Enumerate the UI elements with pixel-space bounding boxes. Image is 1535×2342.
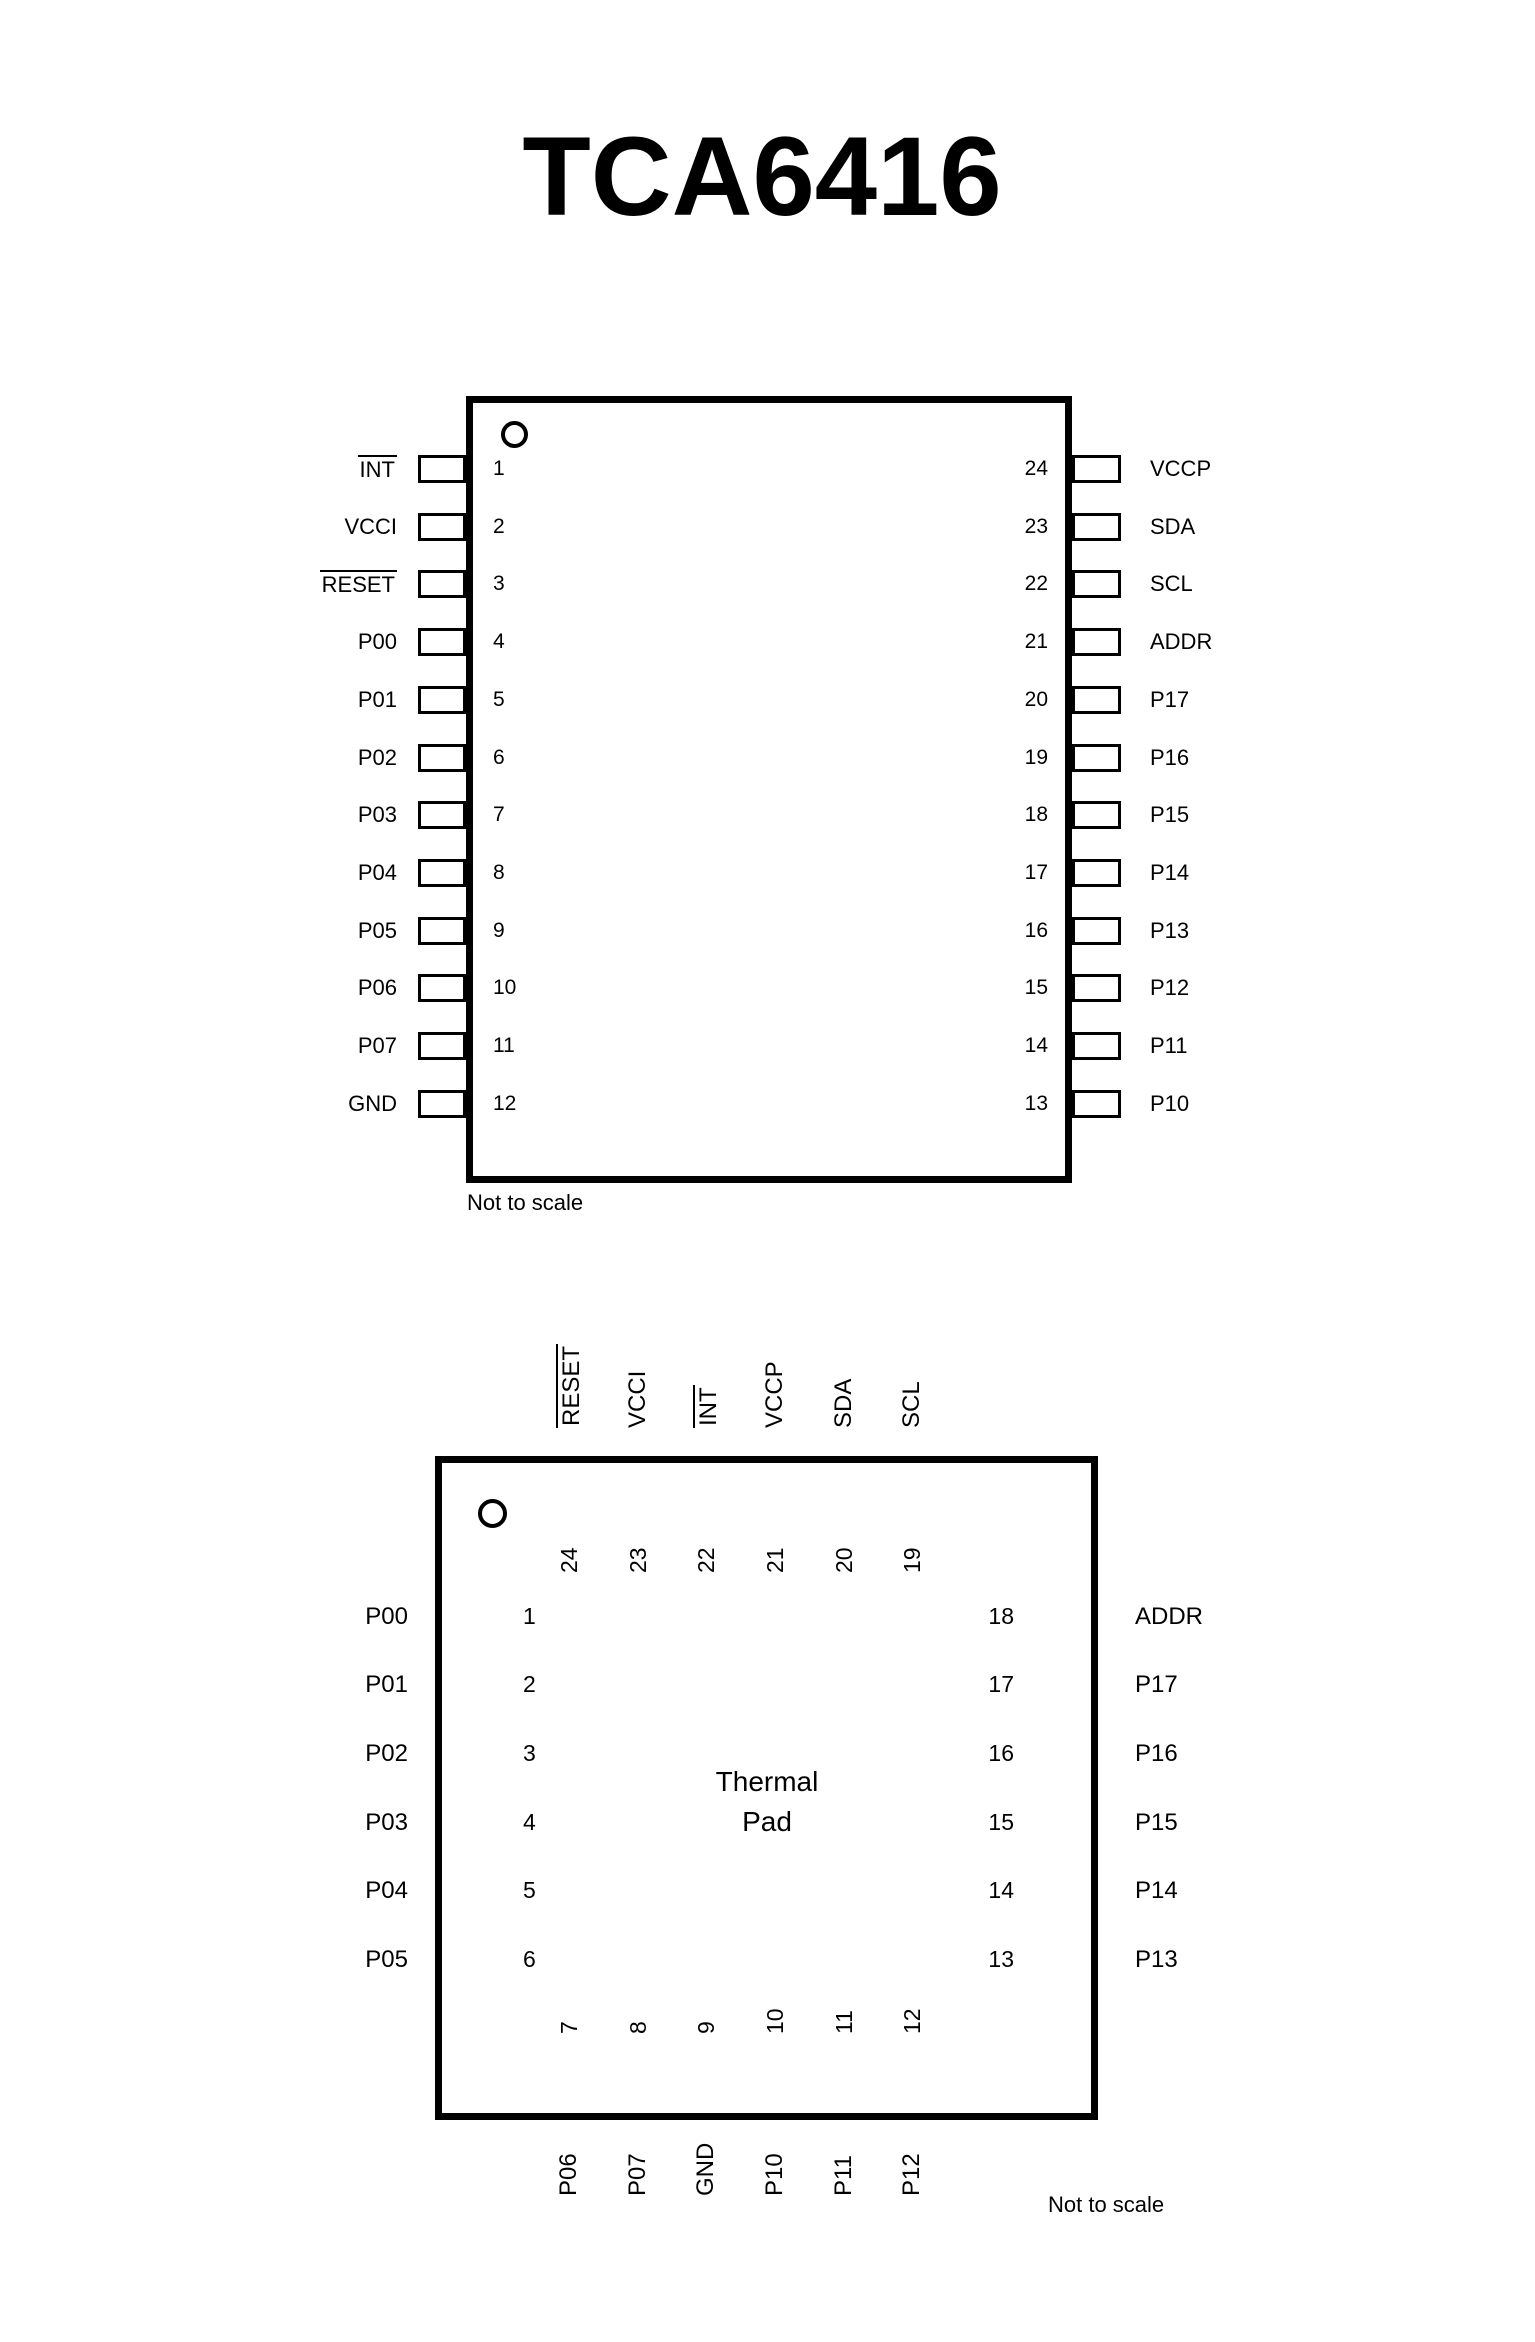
pin-label-text: VCCI (624, 1371, 651, 1428)
pin-label: P03 (200, 801, 397, 829)
pin-number: 22 (693, 1547, 719, 1573)
pin-number: 13 (998, 1090, 1048, 1118)
pin-number: 21 (998, 628, 1048, 656)
pin-number: 20 (998, 686, 1048, 714)
pin-number: 22 (998, 570, 1048, 598)
pin-label: SCL (1150, 570, 1310, 598)
pin-label: P15 (1135, 1805, 1295, 1840)
pin-box (1072, 686, 1121, 714)
pin-number: 16 (998, 917, 1048, 945)
pin-number: 15 (964, 1805, 1014, 1840)
pin-label-text: P00 (365, 1603, 408, 1630)
pin-label-text: VCCP (1150, 456, 1211, 481)
pin-box (418, 686, 466, 714)
pin-box (1072, 513, 1121, 541)
pin-label: RESET (200, 570, 397, 598)
page-title: TCA6416 (0, 112, 1524, 241)
pin-label-text: P12 (898, 2153, 925, 2196)
pin-label-text: P17 (1150, 687, 1189, 712)
pin-number: 17 (998, 859, 1048, 887)
pin-label: SCL (899, 1381, 925, 1428)
pin-label-text: P10 (761, 2153, 788, 2196)
pin-label: P01 (250, 1667, 408, 1702)
pin-box (1072, 744, 1121, 772)
pin-box (1072, 1090, 1121, 1118)
pin-box (418, 1090, 466, 1118)
pin-label: VCCP (762, 1361, 788, 1428)
pin-label-text: SDA (830, 1379, 857, 1428)
pin-number: 23 (998, 513, 1048, 541)
pin-label: P07 (200, 1032, 397, 1060)
pin-box (1072, 570, 1121, 598)
pin-label: P04 (200, 859, 397, 887)
pin-label-text: RESET (320, 570, 397, 596)
pin-label: P02 (200, 744, 397, 772)
pin-label: P05 (250, 1942, 408, 1977)
pin-number: 2 (523, 1667, 567, 1702)
pin-label-text: P04 (365, 1877, 408, 1904)
pin-box (418, 917, 466, 945)
pin-number: 15 (998, 974, 1048, 1002)
pin-number: 19 (998, 744, 1048, 772)
pin-label-text: SCL (1150, 571, 1193, 596)
pin-number: 4 (493, 628, 539, 656)
pin-label-text: P16 (1150, 745, 1189, 770)
pin-label-text: VCCP (761, 1361, 788, 1428)
pin-number: 21 (762, 1547, 788, 1573)
pin-label: P00 (200, 628, 397, 656)
pin-label-text: P12 (1150, 975, 1189, 1000)
pin-label: VCCI (625, 1371, 651, 1428)
pin-number: 23 (625, 1547, 651, 1573)
pin-label: P17 (1150, 686, 1310, 714)
pin-number: 13 (964, 1942, 1014, 1977)
pin-label-text: P10 (1150, 1091, 1189, 1116)
pin-label: P17 (1135, 1667, 1295, 1702)
pin-label-text: ADDR (1150, 629, 1212, 654)
pin-number: 18 (998, 801, 1048, 829)
pin-label-text: P03 (358, 802, 397, 827)
pin-label: P16 (1150, 744, 1310, 772)
pin-label-text: P11 (1150, 1033, 1188, 1058)
pin-box (1072, 974, 1121, 1002)
tssop-pin1-indicator-circle (501, 421, 528, 448)
pin-label: P10 (1150, 1090, 1310, 1118)
pin-box (418, 1032, 466, 1060)
pin-box (418, 859, 466, 887)
pin-label-text: P04 (358, 860, 397, 885)
pin-number: 8 (493, 859, 539, 887)
pin-label-text: P02 (358, 745, 397, 770)
pin-label-text: P03 (365, 1809, 408, 1836)
qfn-pin1-indicator-circle (478, 1499, 507, 1528)
datasheet-page: TCA6416 1INT2VCCI3RESET4P005P016P027P038… (0, 0, 1535, 2342)
pin-label-text: ADDR (1135, 1603, 1203, 1630)
pin-label-text: GND (692, 2143, 719, 2196)
pin-label-text: P06 (555, 2153, 582, 2196)
pin-label: P12 (1150, 974, 1310, 1002)
pin-number: 18 (964, 1599, 1014, 1634)
pin-box (1072, 455, 1121, 483)
pin-label-text: P14 (1150, 860, 1189, 885)
pin-number: 6 (493, 744, 539, 772)
pin-label: P11 (831, 2155, 857, 2196)
pin-number: 14 (964, 1873, 1014, 1908)
thermal-pad-label-line2: Pad (592, 1802, 942, 1842)
pin-box (1072, 859, 1121, 887)
pin-label-text: P15 (1150, 802, 1189, 827)
pin-number: 11 (831, 2010, 857, 2034)
pin-label-text: P11 (830, 2155, 857, 2196)
pin-label: P02 (250, 1736, 408, 1771)
pin-label: P16 (1135, 1736, 1295, 1771)
pin-label: P12 (899, 2153, 925, 2196)
pin-number: 3 (523, 1736, 567, 1771)
pin-label-text: INT (358, 455, 397, 481)
pin-box (1072, 1032, 1121, 1060)
pin-number: 4 (523, 1805, 567, 1840)
pin-label: ADDR (1135, 1599, 1295, 1634)
pin-label: P14 (1150, 859, 1310, 887)
pin-label: P04 (250, 1873, 408, 1908)
pin-box (418, 628, 466, 656)
pin-label: VCCI (200, 513, 397, 541)
pin-number: 5 (523, 1873, 567, 1908)
pin-number: 6 (523, 1942, 567, 1977)
pin-label-text: P02 (365, 1740, 408, 1767)
pin-box (418, 801, 466, 829)
pin-label: INT (693, 1385, 719, 1428)
pin-number: 10 (762, 2008, 788, 2034)
pin-number: 24 (998, 455, 1048, 483)
pin-label: P05 (200, 917, 397, 945)
tssop-body-outline (466, 396, 1072, 1183)
pin-label: GND (693, 2143, 719, 2196)
pin-label-text: VCCI (344, 514, 397, 539)
pin-label-text: P06 (358, 975, 397, 1000)
pin-number: 10 (493, 974, 539, 1002)
pin-number: 16 (964, 1736, 1014, 1771)
pin-label: P13 (1150, 917, 1310, 945)
pin-label-text: P13 (1135, 1946, 1178, 1973)
pin-label: SDA (831, 1379, 857, 1428)
pin-label-text: P07 (624, 2153, 651, 2196)
pin-number: 1 (523, 1599, 567, 1634)
pin-number: 12 (493, 1090, 539, 1118)
pin-label-text: P15 (1135, 1809, 1178, 1836)
pin-box (418, 513, 466, 541)
pin-label: VCCP (1150, 455, 1310, 483)
pin-label: ADDR (1150, 628, 1310, 656)
pin-number: 7 (493, 801, 539, 829)
pin-number: 19 (899, 1547, 925, 1573)
thermal-pad-label-line1: Thermal (592, 1762, 942, 1802)
pin-number: 8 (625, 2021, 651, 2034)
pin-box (418, 455, 466, 483)
pin-label-text: P14 (1135, 1877, 1178, 1904)
pin-number: 24 (556, 1547, 582, 1573)
pin-label-text: SCL (898, 1381, 925, 1428)
pin-label: P06 (556, 2153, 582, 2196)
pin-label-text: P00 (358, 629, 397, 654)
pin-box (1072, 628, 1121, 656)
pin-label-text: P07 (358, 1033, 397, 1058)
pin-label-text: P05 (358, 918, 397, 943)
pin-label-text: INT (693, 1385, 721, 1428)
pin-box (418, 570, 466, 598)
pin-label: P00 (250, 1599, 408, 1634)
pin-label: GND (200, 1090, 397, 1118)
qfn-not-to-scale-note: Not to scale (1048, 2192, 1164, 2218)
pin-label-text: P05 (365, 1946, 408, 1973)
pin-number: 5 (493, 686, 539, 714)
pin-label: SDA (1150, 513, 1310, 541)
pin-label: P11 (1150, 1032, 1310, 1060)
pin-box (418, 744, 466, 772)
pin-box (1072, 917, 1121, 945)
pin-number: 20 (831, 1547, 857, 1573)
pin-number: 11 (493, 1032, 539, 1060)
pin-label-text: P16 (1135, 1740, 1178, 1767)
pin-box (1072, 801, 1121, 829)
pin-label: P10 (762, 2153, 788, 2196)
pin-label: RESET (556, 1344, 582, 1428)
pin-number: 9 (493, 917, 539, 945)
pin-label: P01 (200, 686, 397, 714)
pin-number: 12 (899, 2008, 925, 2034)
thermal-pad-label: Thermal Pad (592, 1762, 942, 1842)
pin-box (418, 974, 466, 1002)
pin-label: P07 (625, 2153, 651, 2196)
pin-label-text: GND (348, 1091, 397, 1116)
pin-number: 2 (493, 513, 539, 541)
pin-label-text: P13 (1150, 918, 1189, 943)
pin-label: P14 (1135, 1873, 1295, 1908)
pin-label-text: P17 (1135, 1671, 1178, 1698)
pin-number: 3 (493, 570, 539, 598)
pin-number: 1 (493, 455, 539, 483)
pin-label: INT (200, 455, 397, 483)
pin-number: 17 (964, 1667, 1014, 1702)
pin-label: P15 (1150, 801, 1310, 829)
pin-label-text: RESET (556, 1344, 584, 1428)
pin-number: 9 (693, 2021, 719, 2034)
pin-label: P13 (1135, 1942, 1295, 1977)
tssop-not-to-scale-note: Not to scale (467, 1190, 583, 1216)
pin-number: 14 (998, 1032, 1048, 1060)
pin-label: P06 (200, 974, 397, 1002)
pin-label: P03 (250, 1805, 408, 1840)
pin-number: 7 (556, 2021, 582, 2034)
pin-label-text: P01 (358, 687, 397, 712)
pin-label-text: P01 (365, 1671, 408, 1698)
pin-label-text: SDA (1150, 514, 1195, 539)
